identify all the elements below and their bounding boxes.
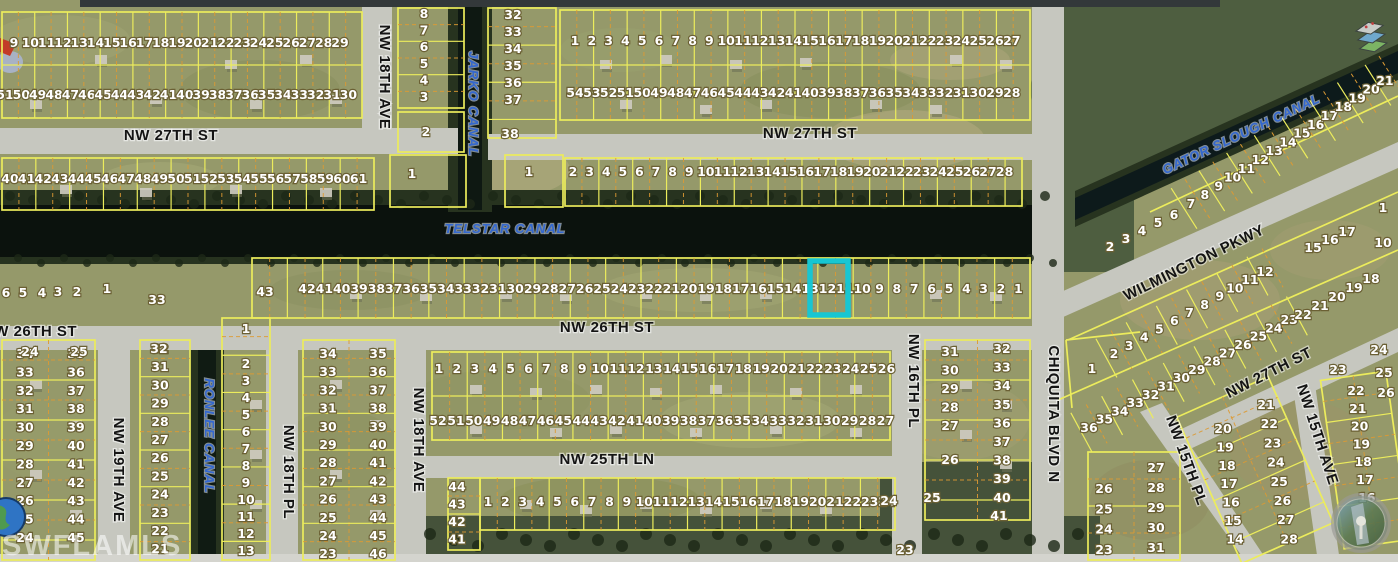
lot-number: 25 [151, 468, 168, 483]
lot-number: 30 [151, 377, 169, 392]
lot-number: 25 [1375, 365, 1392, 380]
lot-number: 41 [316, 281, 333, 296]
lot-number: 16 [1321, 232, 1339, 247]
lot-number: 20 [680, 281, 698, 296]
lot-number: 51 [617, 85, 634, 100]
lot-number: 34 [993, 378, 1011, 393]
lot-number: 28 [1280, 531, 1297, 546]
lot-number: 24 [151, 487, 169, 502]
lot-number: 6 [420, 39, 429, 54]
lot-number: 1 [242, 321, 251, 336]
lot-number: 36 [869, 85, 887, 100]
lot-number: 39 [369, 419, 386, 434]
lot-number: 19 [869, 33, 886, 48]
lot-number: 23 [628, 281, 645, 296]
lot-number: 43 [590, 413, 607, 428]
lot-number: 32 [504, 7, 521, 22]
lot-number: 5 [242, 407, 251, 422]
lot-number: 20 [1328, 289, 1346, 304]
lot-number: 15 [767, 281, 784, 296]
lot-number: 4 [621, 33, 630, 48]
lot-number: 9 [1215, 289, 1224, 304]
lot-number: 57 [283, 171, 300, 186]
ground-area [0, 554, 1398, 562]
lot-number: 38 [369, 401, 386, 416]
lot-number: 31 [151, 359, 168, 374]
house-roof [700, 105, 712, 114]
lot-number: 17 [1356, 472, 1373, 487]
lot-number: 58 [300, 171, 317, 186]
lot-number: 22 [896, 164, 913, 179]
lot-number: 18 [1362, 271, 1379, 286]
lot-number: 25 [593, 281, 610, 296]
street-label: NW 26TH ST [0, 323, 77, 340]
street-label: NW 16TH PL [905, 334, 922, 428]
lot-number: 16 [740, 494, 758, 509]
lot-number: 37 [993, 434, 1010, 449]
lot-number: 19 [752, 361, 769, 376]
lot-number: 3 [585, 164, 594, 179]
lot-number: 38 [368, 281, 385, 296]
lot-number: 4 [242, 390, 251, 405]
lot-number: 28 [1147, 480, 1164, 495]
lot-number: 45 [84, 171, 101, 186]
lot-number: 11 [38, 35, 55, 50]
lot-number: 3 [54, 284, 63, 299]
lot-number: 48 [667, 85, 684, 100]
lot-number: 6 [635, 164, 644, 179]
lot-number: 7 [542, 361, 551, 376]
lot-number: 44 [111, 87, 129, 102]
lot-number: 11 [653, 494, 670, 509]
lot-number: 8 [1200, 187, 1209, 202]
lot-number: 49 [650, 85, 667, 100]
lot-number: 30 [941, 363, 959, 378]
lot-number: 5 [1155, 321, 1164, 336]
lot-number: 8 [420, 6, 429, 21]
house-roof [250, 450, 262, 459]
lot-number: 18 [1218, 458, 1235, 473]
lot-number: 35 [885, 85, 902, 100]
lot-number: 1 [571, 33, 580, 48]
lot-number: 31 [805, 413, 822, 428]
lot-number: 17 [1338, 224, 1355, 239]
lot-number: 40 [176, 87, 194, 102]
lot-number: 32 [150, 341, 167, 356]
lot-number: 32 [307, 87, 324, 102]
lot-number: 15 [1304, 240, 1321, 255]
lot-number: 13 [747, 164, 764, 179]
lot-number: 15 [722, 494, 739, 509]
lot-number: 38 [67, 401, 84, 416]
lot-number: 37 [67, 383, 84, 398]
lot-number: 23 [151, 505, 168, 520]
lot-number: 7 [671, 33, 680, 48]
lot-number: 23 [896, 542, 913, 557]
lot-number: 5 [506, 361, 515, 376]
lot-number: 19 [1216, 439, 1233, 454]
lot-number: 41 [785, 85, 802, 100]
lot-number: 18 [852, 33, 869, 48]
lot-number: 33 [454, 281, 471, 296]
lot-number: 12 [730, 164, 747, 179]
lot-number: 29 [331, 35, 348, 50]
lot-number: 42 [448, 514, 465, 529]
lot-number: 32 [993, 341, 1010, 356]
lot-number: 11 [714, 164, 731, 179]
lot-number: 4 [488, 361, 497, 376]
lot-number: 22 [1294, 307, 1311, 322]
lot-number: 25 [1095, 501, 1112, 516]
lot-number: 23 [936, 33, 953, 48]
lot-number: 4 [1138, 223, 1147, 238]
lot-number: 39 [350, 281, 367, 296]
lot-number: 10 [635, 494, 653, 509]
lot-number: 8 [242, 458, 251, 473]
lot-number: 42 [768, 85, 785, 100]
lot-number: 3 [420, 89, 429, 104]
lot-number: 43 [67, 493, 84, 508]
lot-number: 50 [13, 87, 31, 102]
lot-number: 10 [22, 35, 40, 50]
lot-number: 6 [1170, 313, 1179, 328]
lot-number: 17 [757, 494, 774, 509]
house-roof [800, 58, 812, 67]
lot-number: 34 [504, 41, 522, 56]
lot-number: 2 [587, 33, 596, 48]
house-roof [870, 100, 882, 109]
lot-number: 41 [626, 413, 643, 428]
lot-number: 29 [319, 437, 336, 452]
lot-number: 36 [402, 281, 420, 296]
lot-number: 9 [622, 494, 631, 509]
lot-number: 1 [525, 164, 534, 179]
lot-number: 24 [842, 361, 860, 376]
lot-number: 15 [801, 33, 818, 48]
lot-number: 26 [1095, 481, 1113, 496]
lot-number: 7 [588, 494, 597, 509]
lot-number: 10 [717, 33, 735, 48]
lot-number: 15 [780, 164, 797, 179]
lot-number: 18 [152, 35, 169, 50]
lot-number: 45 [369, 528, 386, 543]
lot-number: 4 [602, 164, 611, 179]
lot-number: 24 [953, 33, 971, 48]
lot-number: 6 [524, 361, 533, 376]
lot-number: 39 [993, 471, 1010, 486]
lot-number: 8 [605, 494, 614, 509]
lot-number: 1 [408, 166, 417, 181]
lot-number: 24 [319, 528, 337, 543]
lot-number: 3 [518, 494, 527, 509]
lot-number: 21 [902, 33, 919, 48]
lot-number: 18 [715, 281, 732, 296]
lot-number: 48 [501, 413, 518, 428]
lot-number: 31 [319, 401, 336, 416]
lot-number: 27 [979, 164, 996, 179]
lot-number: 17 [717, 361, 734, 376]
lot-number: 30 [1147, 520, 1165, 535]
street-label: NW 26TH ST [560, 319, 654, 336]
lot-number: 24 [880, 493, 898, 508]
lot-number: 28 [319, 455, 336, 470]
lot-number: 31 [953, 85, 970, 100]
road [418, 456, 912, 478]
lot-number: 34 [319, 346, 337, 361]
lot-number: 27 [559, 281, 576, 296]
lot-number: 46 [78, 87, 96, 102]
lot-number: 16 [1222, 495, 1240, 510]
lot-number: 35 [420, 281, 437, 296]
lot-number: 15 [1224, 513, 1241, 528]
lot-number: 23 [861, 494, 878, 509]
lot-number: 27 [877, 413, 894, 428]
lot-number: 16 [749, 281, 767, 296]
house-roof [620, 100, 632, 109]
lot-number: 43 [51, 171, 68, 186]
lot-number: 40 [67, 438, 85, 453]
lot-number: 43 [448, 497, 465, 512]
lot-number: 6 [2, 285, 11, 300]
lot-number: 19 [697, 281, 714, 296]
lot-number: 41 [990, 508, 1007, 523]
lot-number: 26 [1274, 493, 1292, 508]
lot-number: 24 [16, 530, 34, 545]
lot-number: 41 [67, 456, 84, 471]
lot-number: 30 [319, 419, 337, 434]
lot-number: 38 [501, 126, 518, 141]
lot-number: 25 [946, 164, 963, 179]
lot-number: 33 [16, 364, 33, 379]
lot-number: 20 [863, 164, 881, 179]
lot-number: 22 [645, 281, 662, 296]
lot-number: 40 [369, 437, 387, 452]
lot-number: 4 [420, 72, 429, 87]
lot-number: 48 [45, 87, 62, 102]
lot-number: 19 [792, 494, 809, 509]
lot-number: 27 [151, 432, 168, 447]
house-roof [850, 385, 862, 394]
lot-number: 6 [655, 33, 664, 48]
lot-number: 7 [652, 164, 661, 179]
lot-number: 18 [735, 361, 752, 376]
house-roof [950, 55, 962, 64]
lot-number: 41 [160, 87, 177, 102]
lot-number: 25 [266, 35, 283, 50]
lot-number: 19 [168, 35, 185, 50]
lot-number: 3 [604, 33, 613, 48]
lot-number: 29 [524, 281, 541, 296]
lot-number: 7 [242, 441, 251, 456]
lot-number: 45 [94, 87, 111, 102]
lot-number: 28 [941, 400, 958, 415]
lot-number: 29 [841, 413, 858, 428]
lot-number: 42 [298, 281, 315, 296]
lot-number: 36 [242, 87, 260, 102]
lot-number: 3 [1125, 338, 1134, 353]
lot-number: 10 [697, 164, 715, 179]
street-label: NW 18TH AVE [376, 25, 393, 130]
lot-number: 8 [893, 281, 902, 296]
lot-number: 41 [18, 171, 35, 186]
lot-number: 20 [885, 33, 903, 48]
lot-number: 21 [826, 494, 843, 509]
lot-number: 39 [67, 420, 84, 435]
lot-number: 5 [1154, 215, 1163, 230]
lot-number: 2 [1110, 346, 1119, 361]
lot-number: 22 [1261, 416, 1278, 431]
lot-number: 13 [237, 543, 254, 558]
lot-number: 52 [600, 85, 617, 100]
lot-number: 14 [87, 35, 105, 50]
lot-number: 2 [997, 281, 1006, 296]
lot-number: 42 [608, 413, 625, 428]
lot-number: 18 [830, 164, 847, 179]
lot-number: 38 [993, 453, 1010, 468]
lot-number: 29 [16, 438, 33, 453]
lot-number: 52 [429, 413, 446, 428]
lot-number: 28 [16, 456, 33, 471]
lot-number: 46 [537, 413, 555, 428]
lot-number: 17 [136, 35, 153, 50]
lot-number: 28 [859, 413, 876, 428]
lot-number: 15 [681, 361, 698, 376]
lot-number: 52 [200, 171, 217, 186]
lot-number: 8 [1200, 297, 1209, 312]
lot-number: 5 [553, 494, 562, 509]
lot-number: 26 [282, 35, 300, 50]
lot-number: 21 [880, 164, 897, 179]
lot-number: 16 [699, 361, 717, 376]
lot-number: 2 [73, 284, 82, 299]
house-roof [230, 185, 242, 194]
lot-number: 26 [878, 361, 896, 376]
canal-label: JARKO CANAL [466, 51, 481, 157]
lot-number: 45 [555, 413, 572, 428]
lot-number: 35 [993, 397, 1010, 412]
lot-number: 22 [806, 361, 823, 376]
lot-number: 26 [963, 164, 981, 179]
lot-number: 21 [788, 361, 805, 376]
lot-number: 25 [923, 490, 940, 505]
lot-number: 32 [472, 281, 489, 296]
lot-number: 33 [769, 413, 786, 428]
lot-number: 44 [68, 171, 86, 186]
lot-number: 35 [258, 87, 275, 102]
lot-number: 40 [993, 490, 1011, 505]
lot-number: 2 [501, 494, 510, 509]
lot-number: 36 [369, 364, 387, 379]
lot-number: 5 [618, 164, 627, 179]
lot-number: 25 [319, 510, 336, 525]
lot-number: 20 [185, 35, 203, 50]
lot-number: 24 [1370, 342, 1388, 357]
house-roof [550, 428, 562, 437]
lot-number: 44 [67, 512, 85, 527]
lot-number: 23 [913, 164, 930, 179]
lot-number: 9 [578, 361, 587, 376]
lot-number: 26 [319, 492, 337, 507]
lot-number: 20 [1351, 419, 1369, 434]
canal-label: RONLEE CANAL [202, 378, 217, 493]
lot-number: 2 [453, 361, 462, 376]
lot-number: 51 [0, 87, 14, 102]
lot-number: 1 [484, 494, 493, 509]
lot-number: 27 [319, 473, 336, 488]
lot-number: 7 [1185, 305, 1194, 320]
lot-number: 19 [846, 164, 863, 179]
lot-number: 36 [504, 75, 522, 90]
aerial-parcel-map: 9101112131415161718192021222324252627282… [0, 0, 1398, 562]
lot-number: 39 [192, 87, 209, 102]
house-roof [710, 385, 722, 394]
lot-number: 7 [1187, 196, 1196, 211]
lot-number: 34 [751, 413, 769, 428]
lot-number: 28 [541, 281, 558, 296]
lot-number: 38 [209, 87, 226, 102]
lot-number: 46 [101, 171, 119, 186]
lot-number: 61 [350, 171, 367, 186]
lot-number: 60 [333, 171, 351, 186]
lot-number: 1 [103, 281, 112, 296]
lot-number: 9 [242, 475, 251, 490]
lot-number: 12 [237, 526, 254, 541]
lot-number: 23 [1095, 542, 1112, 557]
lot-number: 21 [201, 35, 218, 50]
lot-number: 18 [1354, 454, 1371, 469]
lot-number: 34 [902, 85, 920, 100]
lot-number: 54 [566, 85, 584, 100]
lot-number: 2 [422, 124, 431, 139]
lot-number: 6 [927, 281, 936, 296]
house-roof [250, 400, 262, 409]
lot-number: 50 [167, 171, 185, 186]
lot-number: 19 [1353, 436, 1370, 451]
lot-number: 34 [274, 87, 292, 102]
lot-number: 9 [875, 281, 884, 296]
lot-number: 24 [1267, 455, 1285, 470]
lot-number: 9 [705, 33, 714, 48]
lot-number: 31 [16, 401, 33, 416]
lot-number: 26 [941, 452, 959, 467]
house-roof [590, 385, 602, 394]
lot-number: 41 [369, 455, 386, 470]
lot-number: 24 [1095, 522, 1113, 537]
lot-number: 40 [1, 171, 19, 186]
lot-number: 5 [420, 56, 429, 71]
lot-number: 14 [705, 494, 723, 509]
lot-number: 14 [663, 361, 681, 376]
lot-number: 27 [16, 475, 33, 490]
lot-number: 47 [62, 87, 79, 102]
lot-number: 12 [1256, 264, 1273, 279]
lot-number: 10 [237, 492, 255, 507]
street-label: NW 19TH AVE [110, 418, 127, 523]
house-roof [850, 428, 862, 437]
lot-number: 23 [233, 35, 250, 50]
lot-number: 40 [801, 85, 819, 100]
lot-number: 22 [1347, 383, 1364, 398]
lot-number: 31 [941, 344, 958, 359]
lot-number: 36 [716, 413, 734, 428]
lot-number: 3 [242, 373, 251, 388]
county-seal-logo [1334, 496, 1388, 550]
lot-number: 20 [809, 494, 827, 509]
lot-number: 25 [70, 344, 87, 359]
lot-number: 56 [267, 171, 285, 186]
lot-number: 37 [504, 92, 521, 107]
lot-number: 54 [234, 171, 252, 186]
